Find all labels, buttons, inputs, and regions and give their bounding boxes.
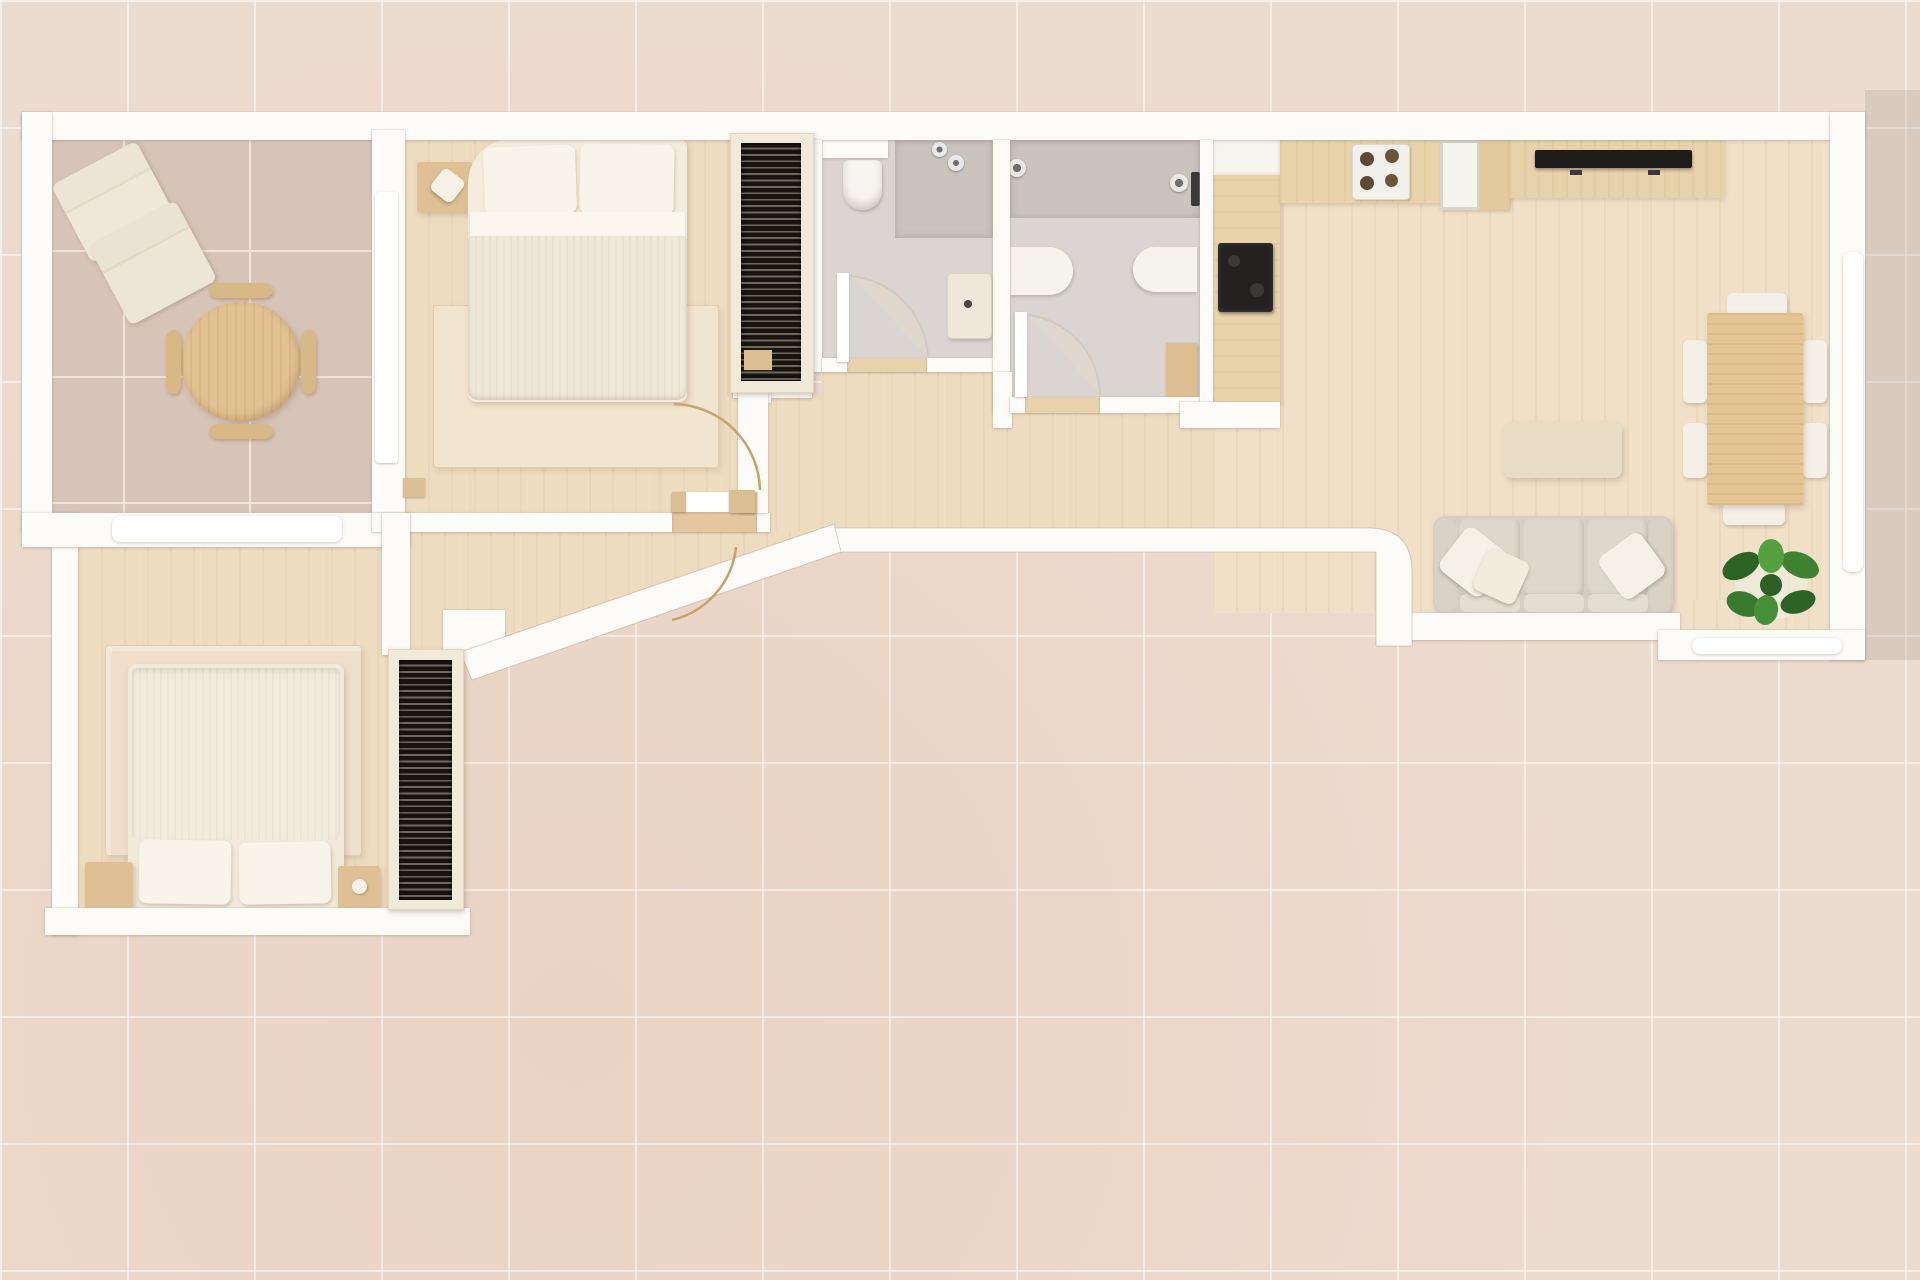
living-bottom-window bbox=[1692, 638, 1842, 654]
bathroom-2-bottom-wall-left bbox=[1010, 397, 1025, 413]
shower-head bbox=[948, 155, 964, 171]
dining-chair bbox=[1803, 340, 1827, 403]
outer-wall-bottom-bedroom bbox=[45, 908, 470, 935]
wall-hung-toilet bbox=[843, 160, 882, 210]
outer-wall-top bbox=[22, 112, 1865, 140]
kitchen-bottom-wall bbox=[1180, 402, 1280, 428]
bedroom-bottom-right-wall bbox=[382, 513, 410, 655]
right-wall-window bbox=[1843, 252, 1863, 572]
door-jamb bbox=[744, 350, 772, 370]
door-leaf-edge bbox=[672, 492, 686, 512]
curved-bench-bottom bbox=[209, 424, 273, 439]
coffee-table bbox=[1504, 422, 1622, 478]
left-wing-interior-window bbox=[112, 516, 342, 542]
sofa-seat-cushion bbox=[1588, 594, 1648, 612]
wardrobe-slats bbox=[399, 660, 452, 900]
dining-table bbox=[1707, 313, 1803, 505]
pillow bbox=[483, 144, 577, 215]
bathroom-1-door-leaf bbox=[837, 273, 849, 362]
dining-chair bbox=[1683, 423, 1707, 478]
nightstand bbox=[85, 862, 133, 908]
curved-bench-left bbox=[166, 330, 181, 394]
bed-duvet bbox=[132, 668, 340, 840]
pillow bbox=[138, 839, 231, 905]
bed-sheet-fold bbox=[470, 212, 685, 238]
hob-burner bbox=[1385, 149, 1399, 163]
bathroom-2-right-wall bbox=[1200, 140, 1213, 413]
bed-duvet bbox=[468, 236, 687, 400]
cooktop-dial bbox=[1250, 283, 1264, 297]
kitchen-sink-unit bbox=[1440, 140, 1480, 210]
kitchen-wood-cabinet bbox=[1480, 138, 1510, 210]
bathroom-1-niche-wall bbox=[822, 140, 888, 158]
vanity-right bbox=[1133, 247, 1197, 292]
exterior-shade-right bbox=[1865, 90, 1920, 660]
dining-chair bbox=[1803, 423, 1827, 478]
living-bottom-wall bbox=[1400, 613, 1680, 640]
hob-burner bbox=[1360, 152, 1374, 166]
bathroom-2-door-leaf bbox=[1015, 312, 1027, 397]
hob-burner bbox=[1360, 176, 1374, 190]
pillow bbox=[238, 841, 331, 905]
round-dining-table bbox=[181, 302, 301, 422]
door-threshold bbox=[672, 513, 757, 532]
curved-bench-right bbox=[301, 330, 316, 394]
four-burner-hob bbox=[1352, 144, 1410, 200]
door-jamb bbox=[729, 490, 755, 513]
slatted-wardrobe-bottom bbox=[388, 649, 464, 910]
basin-drain bbox=[964, 300, 972, 308]
door-threshold bbox=[847, 358, 927, 372]
tv-foot bbox=[1648, 170, 1660, 175]
tv-foot bbox=[1570, 170, 1582, 175]
table-lamp bbox=[352, 879, 367, 894]
black-cooktop bbox=[1218, 243, 1273, 312]
dining-chair bbox=[1723, 503, 1785, 525]
slatted-wardrobe-top bbox=[730, 133, 814, 393]
curved-bench-top bbox=[209, 283, 273, 298]
dining-chair bbox=[1683, 340, 1707, 403]
sofa-seat-cushion bbox=[1524, 594, 1584, 612]
bedroom-top-bottom-wall-right bbox=[757, 513, 770, 532]
shower-column bbox=[1191, 172, 1200, 206]
cooktop-dial bbox=[1228, 255, 1240, 267]
door-jamb bbox=[403, 478, 425, 497]
hob-burner bbox=[1385, 174, 1398, 187]
shower-head bbox=[1170, 174, 1188, 192]
door-threshold bbox=[1025, 397, 1100, 413]
sofa-back-cushion bbox=[1523, 518, 1584, 598]
vanity-left bbox=[1010, 247, 1073, 295]
corner-cabinet bbox=[1166, 343, 1197, 397]
wardrobe-slats bbox=[741, 143, 801, 381]
outer-wall-left-upper bbox=[22, 112, 52, 533]
bedroom-top-bottom-wall-left bbox=[372, 513, 672, 532]
pillow bbox=[579, 143, 674, 215]
outer-wall-left-lower bbox=[52, 513, 78, 935]
entry-pillar bbox=[443, 610, 505, 652]
shower-head bbox=[932, 142, 947, 157]
sliding-door-study bbox=[375, 192, 398, 463]
bathroom-1-bottom-wall-right bbox=[927, 358, 993, 372]
shower-head bbox=[1008, 159, 1026, 177]
floor-plan-canvas bbox=[0, 0, 1920, 1280]
tv-console bbox=[1510, 138, 1725, 198]
tv-screen bbox=[1535, 150, 1692, 168]
